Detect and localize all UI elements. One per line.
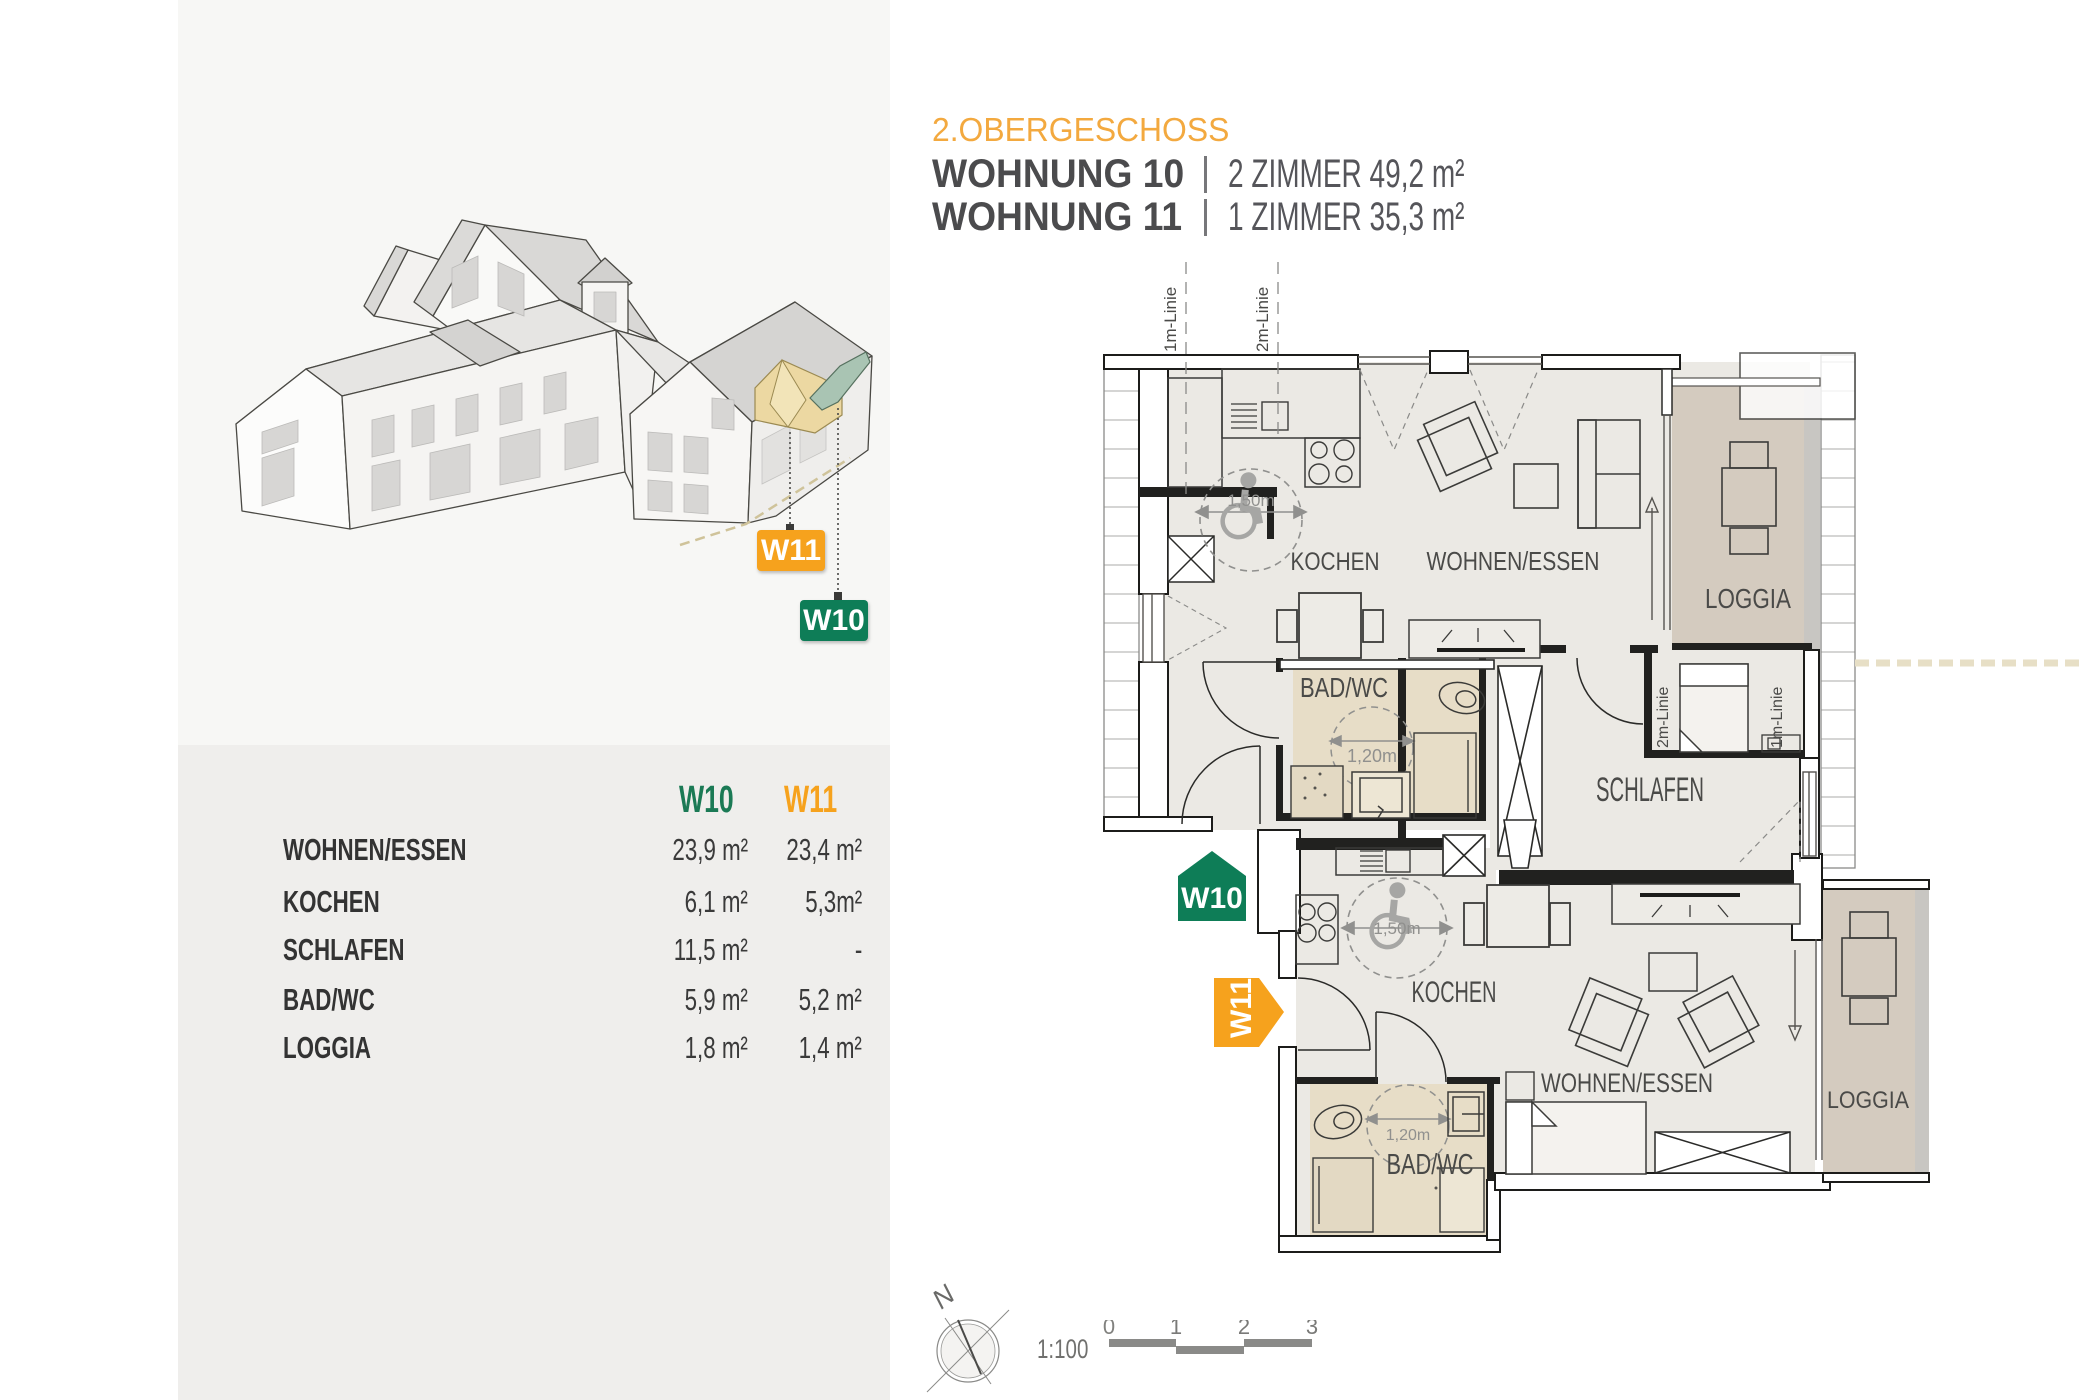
svg-text:W10: W10 xyxy=(1181,882,1243,915)
svg-text:LOGGIA: LOGGIA xyxy=(1705,583,1791,614)
svg-text:1,20m: 1,20m xyxy=(1347,746,1397,766)
svg-text:LOGGIA: LOGGIA xyxy=(1827,1087,1909,1114)
svg-text:1m-Linie: 1m-Linie xyxy=(1161,287,1180,352)
svg-text:BAD/WC: BAD/WC xyxy=(1300,672,1388,703)
svg-text:N: N xyxy=(926,1279,960,1315)
svg-text:2m-Linie: 2m-Linie xyxy=(1655,687,1672,748)
svg-text:2: 2 xyxy=(1238,1320,1250,1339)
svg-text:0: 0 xyxy=(1103,1320,1115,1339)
svg-text:SCHLAFEN: SCHLAFEN xyxy=(1596,771,1704,809)
svg-text:KOCHEN: KOCHEN xyxy=(1412,976,1497,1009)
svg-text:3: 3 xyxy=(1306,1320,1318,1339)
svg-text:1,50m: 1,50m xyxy=(1227,491,1274,510)
svg-text:KOCHEN: KOCHEN xyxy=(1291,548,1380,576)
svg-text:1,50m: 1,50m xyxy=(1373,919,1420,938)
svg-text:BAD/WC: BAD/WC xyxy=(1387,1149,1474,1181)
svg-text:W11: W11 xyxy=(1225,978,1258,1038)
svg-text:1,20m: 1,20m xyxy=(1386,1127,1430,1144)
svg-text:WOHNEN/ESSEN: WOHNEN/ESSEN xyxy=(1427,546,1600,576)
svg-text:1m-Linie: 1m-Linie xyxy=(1769,687,1786,748)
svg-text:WOHNEN/ESSEN: WOHNEN/ESSEN xyxy=(1541,1068,1713,1098)
svg-text:1: 1 xyxy=(1170,1320,1182,1339)
svg-text:2m-Linie: 2m-Linie xyxy=(1253,287,1272,352)
